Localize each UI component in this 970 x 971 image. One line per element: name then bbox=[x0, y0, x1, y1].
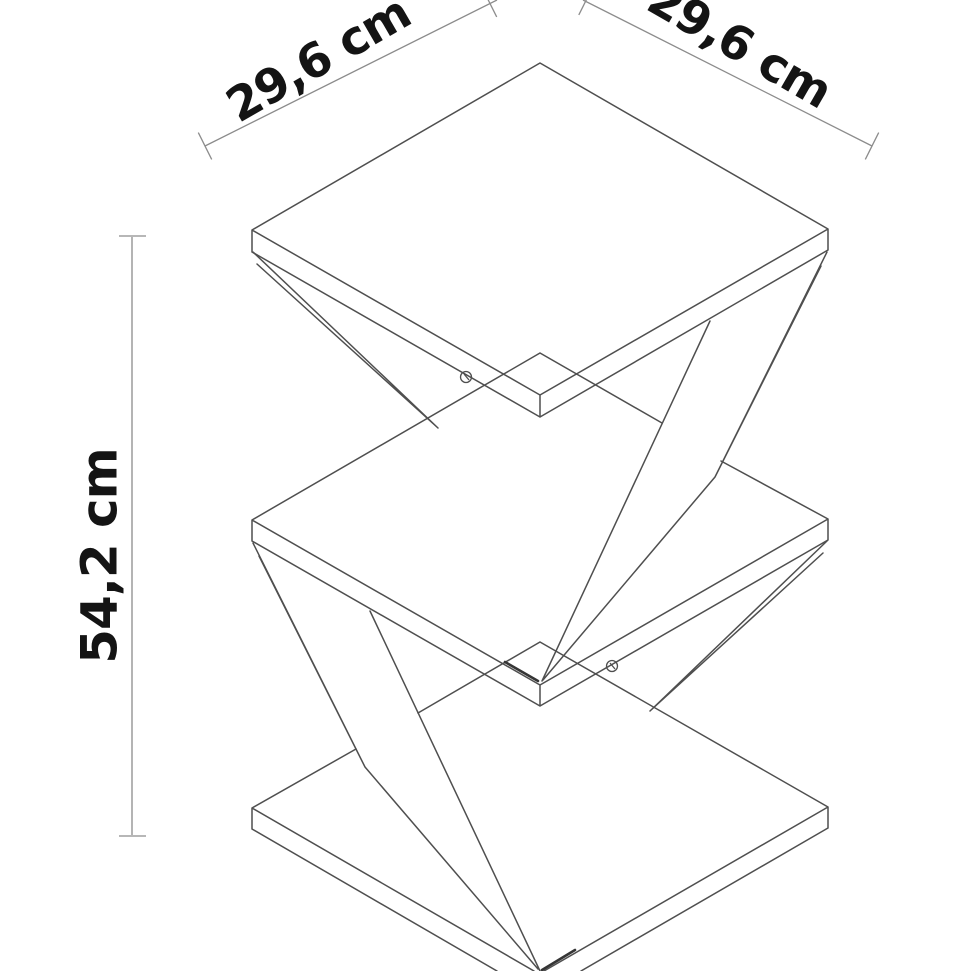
width-dimension-label: 29,6 cm bbox=[638, 0, 841, 120]
panel-seam-lines bbox=[505, 662, 575, 970]
width-dimension-tick bbox=[579, 0, 592, 15]
depth-dimension-label: 29,6 cm bbox=[217, 0, 420, 134]
height-dimension-label: 54,2 cm bbox=[71, 448, 129, 664]
dimension-annotations bbox=[119, 0, 879, 836]
side-table-dimension-diagram: 29,6 cm 29,6 cm 54,2 cm bbox=[0, 0, 970, 971]
top-shelf bbox=[252, 63, 828, 417]
side-table-drawing bbox=[252, 63, 828, 971]
lower-diagonal-panel bbox=[253, 541, 827, 971]
diagram-page: 29,6 cm 29,6 cm 54,2 cm bbox=[0, 0, 970, 971]
upper-diagonal-panel bbox=[253, 252, 827, 681]
depth-dimension-tick bbox=[198, 133, 211, 160]
width-dimension-tick bbox=[865, 133, 878, 160]
depth-dimension-tick bbox=[483, 0, 496, 17]
